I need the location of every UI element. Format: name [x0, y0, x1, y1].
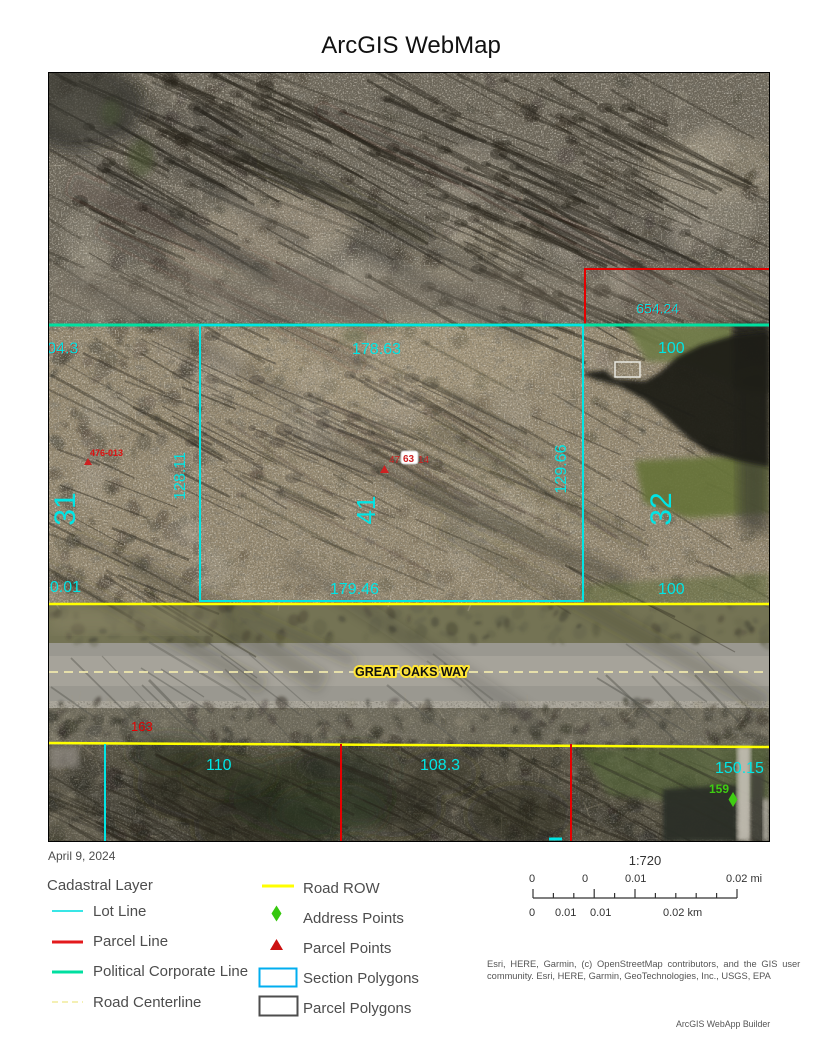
svg-text:0.02 km: 0.02 km	[663, 907, 702, 919]
svg-text:150.15: 150.15	[715, 760, 764, 777]
svg-text:0.02 mi: 0.02 mi	[726, 873, 762, 885]
svg-text:159: 159	[709, 782, 729, 796]
svg-text:0: 0	[529, 907, 535, 919]
svg-text:31: 31	[49, 492, 82, 525]
svg-text:100: 100	[658, 581, 685, 598]
svg-text:178.63: 178.63	[352, 341, 401, 358]
svg-text:10.01: 10.01	[49, 579, 81, 596]
svg-text:32: 32	[645, 492, 678, 525]
svg-text:0: 0	[529, 873, 535, 885]
svg-text:128.11: 128.11	[172, 452, 189, 500]
svg-text:179.46: 179.46	[330, 581, 379, 598]
svg-text:110: 110	[206, 757, 232, 774]
svg-text:GREAT OAKS WAY: GREAT OAKS WAY	[355, 665, 469, 679]
svg-text:0.01: 0.01	[555, 907, 576, 919]
svg-text:654.24: 654.24	[636, 300, 679, 316]
svg-text:108.3: 108.3	[420, 757, 460, 774]
svg-text:63: 63	[403, 454, 415, 465]
svg-text:0.01: 0.01	[590, 907, 611, 919]
svg-text:0: 0	[582, 873, 588, 885]
svg-text:476-013: 476-013	[90, 448, 123, 458]
svg-text:604.3: 604.3	[49, 340, 79, 357]
svg-text:41: 41	[351, 496, 381, 525]
svg-text:163: 163	[131, 719, 153, 734]
svg-text:100: 100	[658, 340, 685, 357]
svg-text:129.66: 129.66	[553, 444, 570, 493]
svg-text:14: 14	[418, 455, 430, 466]
svg-text:0.01: 0.01	[625, 873, 646, 885]
